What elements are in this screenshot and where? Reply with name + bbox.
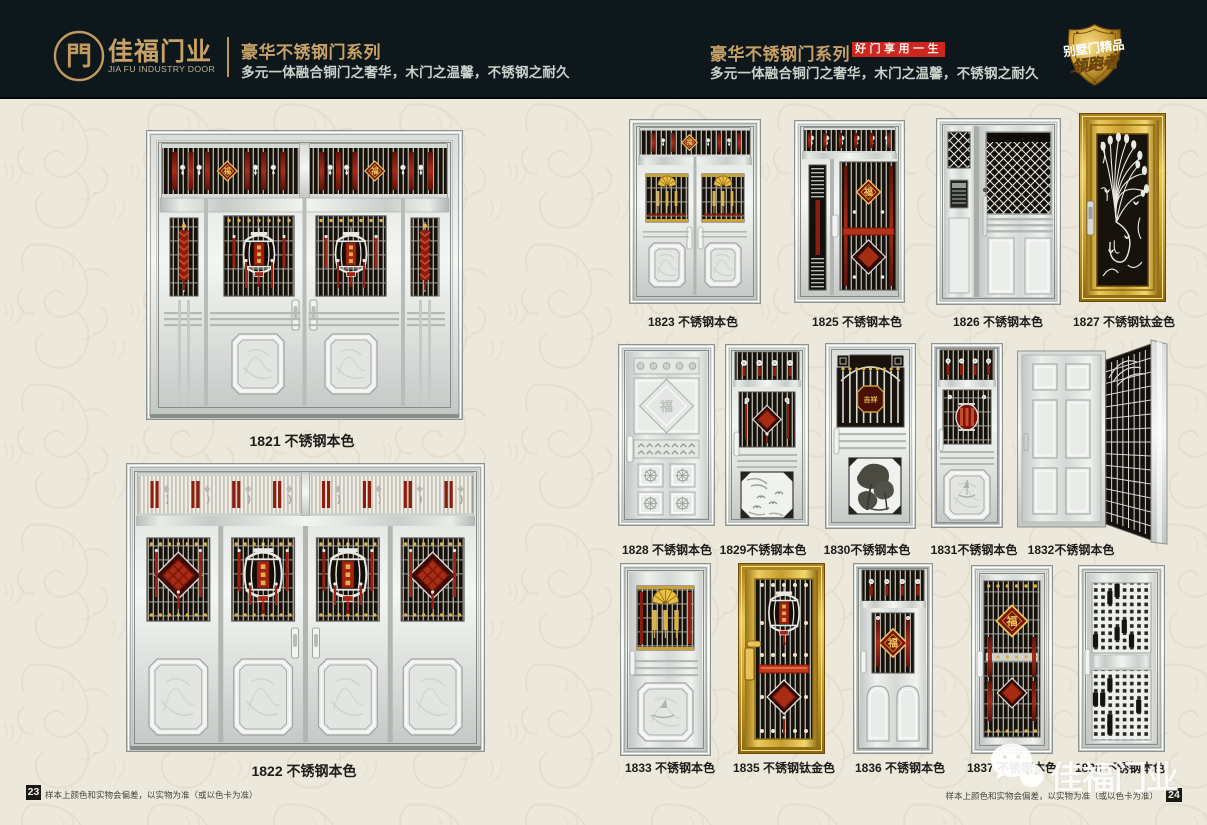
svg-text:福: 福 xyxy=(887,637,898,650)
svg-text:門: 門 xyxy=(66,41,92,71)
svg-text:福: 福 xyxy=(370,166,379,176)
svg-text:福: 福 xyxy=(659,399,673,414)
svg-text:福: 福 xyxy=(223,166,232,176)
svg-text:福: 福 xyxy=(1006,614,1018,628)
svg-text:吉祥: 吉祥 xyxy=(864,395,878,404)
svg-text:福: 福 xyxy=(685,139,692,147)
svg-text:福: 福 xyxy=(863,186,873,197)
